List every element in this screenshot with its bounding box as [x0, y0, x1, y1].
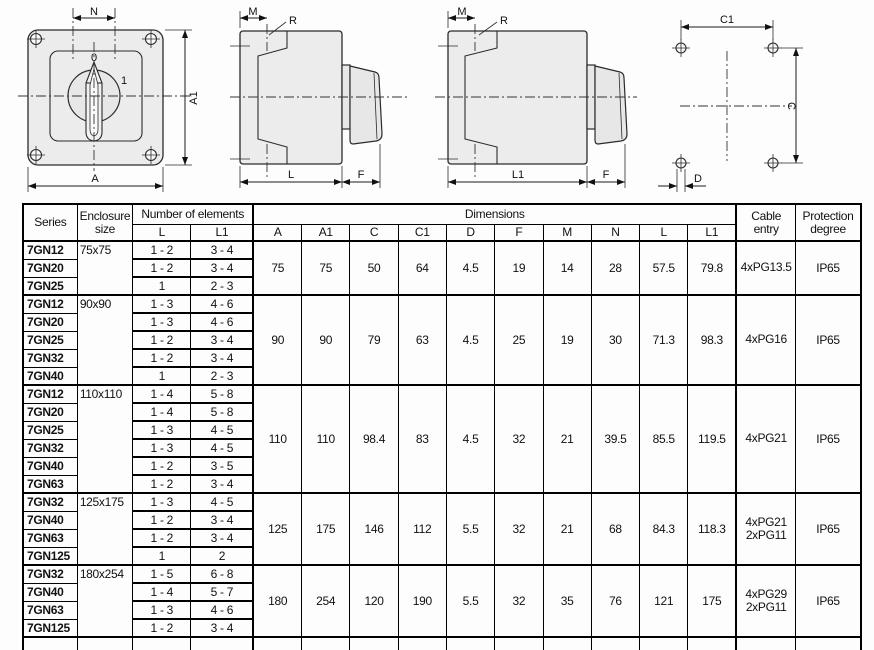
knob-side	[350, 66, 382, 144]
elements-l1-cell: 4 - 5	[191, 421, 253, 439]
dim-value-cell: 39.5	[591, 385, 639, 493]
dim-value-cell: 90	[253, 295, 301, 385]
dim-value-cell: 57.5	[640, 241, 688, 295]
protection-cell: IP65	[796, 241, 861, 295]
dim-label-c1: C1	[720, 14, 734, 26]
dim-value-cell: 175	[688, 565, 736, 637]
dim-value-cell: 32	[495, 565, 543, 637]
table-row: 7GN32180x2541 - 56 - 81802541201905.5323…	[23, 565, 861, 583]
cable-entry-cell: 4xPG21	[736, 385, 795, 493]
elements-l1-cell: 4 - 5	[191, 439, 253, 457]
elements-l1-cell: 4 - 6	[191, 313, 253, 331]
elements-l-cell: 1 - 2	[133, 259, 191, 277]
elements-l1-cell: 3 - 4	[191, 529, 253, 547]
series-cell: 7GN25	[23, 421, 77, 439]
dim-value-cell: 4.5	[446, 385, 494, 493]
table-row: 7GN1290x901 - 34 - 6909079634.525193071.…	[23, 295, 861, 313]
dim-value-cell: 71.3	[640, 295, 688, 385]
dim-label-f: F	[603, 169, 610, 181]
switch-body	[240, 31, 342, 164]
dim-value-cell: 64	[398, 241, 446, 295]
elements-l-cell: 1 - 3	[133, 439, 191, 457]
elements-l1-cell: 3 - 5	[191, 457, 253, 475]
enclosure-size-cell: 75x75	[77, 241, 132, 295]
elements-l-cell: 1 - 3	[133, 493, 191, 511]
series-cell: 7GN20	[23, 313, 77, 331]
elements-l-cell: 1 - 2	[133, 529, 191, 547]
col-header-dim-l1: L1	[688, 224, 736, 241]
dim-value-cell: 190	[398, 565, 446, 637]
stub-cell	[23, 637, 77, 650]
table-row: 7GN12110x1101 - 45 - 811011098.4834.5322…	[23, 385, 861, 403]
position-1-label: 1	[121, 75, 127, 87]
dim-value-cell: 75	[253, 241, 301, 295]
datasheet-page: 0 1 N A1 A M	[0, 0, 874, 650]
col-header-elements: Number of elements	[133, 204, 254, 224]
cable-entry-cell: 4xPG16	[736, 295, 795, 385]
col-header-dim-a1: A1	[302, 224, 350, 241]
stub-cell	[253, 637, 301, 650]
elements-l1-cell: 6 - 8	[191, 565, 253, 583]
table-row: 7GN32125x1751 - 34 - 51251751461125.5322…	[23, 493, 861, 511]
elements-l-cell: 1 - 2	[133, 511, 191, 529]
elements-l1-cell: 4 - 6	[191, 295, 253, 313]
dim-value-cell: 63	[398, 295, 446, 385]
series-cell: 7GN40	[23, 367, 77, 385]
dim-value-cell: 98.3	[688, 295, 736, 385]
stub-cell	[191, 637, 253, 650]
col-header-dim-n: N	[591, 224, 639, 241]
stub-cell	[543, 637, 591, 650]
dim-value-cell: 28	[591, 241, 639, 295]
series-cell: 7GN32	[23, 439, 77, 457]
elements-l1-cell: 3 - 4	[191, 241, 253, 259]
elements-l1-cell: 2	[191, 547, 253, 565]
dim-value-cell: 84.3	[640, 493, 688, 565]
dim-value-cell: 35	[543, 565, 591, 637]
stub-cell	[77, 637, 132, 650]
dim-value-cell: 5.5	[446, 565, 494, 637]
dim-value-cell: 175	[302, 493, 350, 565]
elements-l-cell: 1	[133, 547, 191, 565]
series-cell: 7GN20	[23, 403, 77, 421]
col-header-dim-f: F	[495, 224, 543, 241]
series-cell: 7GN125	[23, 547, 77, 565]
dim-value-cell: 25	[495, 295, 543, 385]
elements-l1-cell: 2 - 3	[191, 277, 253, 295]
side-view-short-drawing: M R L F	[225, 6, 420, 200]
series-cell: 7GN25	[23, 331, 77, 349]
side-view-long-drawing: M R L1 F	[425, 6, 643, 200]
dim-label-m: M	[457, 6, 466, 18]
col-header-dim-c: C	[350, 224, 398, 241]
dim-value-cell: 32	[495, 493, 543, 565]
stub-cell	[495, 637, 543, 650]
elements-l-cell: 1 - 2	[133, 457, 191, 475]
dim-value-cell: 120	[350, 565, 398, 637]
dim-value-cell: 119.5	[688, 385, 736, 493]
dim-value-cell: 50	[350, 241, 398, 295]
stub-cell	[736, 637, 795, 650]
dim-value-cell: 5.5	[446, 493, 494, 565]
dim-value-cell: 110	[302, 385, 350, 493]
series-cell: 7GN12	[23, 241, 77, 259]
series-cell: 7GN32	[23, 349, 77, 367]
front-view-drawing: 0 1 N A1 A	[15, 6, 215, 200]
elements-l-cell: 1 - 3	[133, 313, 191, 331]
dim-value-cell: 180	[253, 565, 301, 637]
stub-cell	[640, 637, 688, 650]
ref-label-r: R	[289, 15, 297, 27]
dim-value-cell: 146	[350, 493, 398, 565]
dim-label-n: N	[90, 6, 98, 18]
dim-value-cell: 90	[302, 295, 350, 385]
elements-l1-cell: 5 - 8	[191, 385, 253, 403]
knob-side	[595, 66, 627, 144]
spec-table-body: 7GN1275x751 - 23 - 4757550644.519142857.…	[23, 241, 861, 650]
elements-l-cell: 1 - 4	[133, 403, 191, 421]
spec-table: Series Enclosure size Number of elements…	[22, 203, 862, 650]
dim-value-cell: 4.5	[446, 295, 494, 385]
drill-pattern-drawing: C1 C D	[650, 6, 874, 201]
elements-l-cell: 1 - 2	[133, 619, 191, 637]
dim-label-a: A	[91, 173, 99, 185]
dim-value-cell: 4.5	[446, 241, 494, 295]
ref-label-r: R	[500, 15, 508, 27]
series-cell: 7GN20	[23, 259, 77, 277]
series-cell: 7GN32	[23, 493, 77, 511]
dim-value-cell: 118.3	[688, 493, 736, 565]
dim-value-cell: 68	[591, 493, 639, 565]
col-header-elements-l1: L1	[191, 224, 253, 241]
dim-value-cell: 19	[495, 241, 543, 295]
elements-l-cell: 1 - 5	[133, 565, 191, 583]
stub-cell	[688, 637, 736, 650]
dim-label-d: D	[694, 173, 702, 185]
col-header-series: Series	[23, 204, 77, 241]
elements-l-cell: 1 - 3	[133, 601, 191, 619]
protection-cell: IP65	[796, 385, 861, 493]
dim-value-cell: 83	[398, 385, 446, 493]
elements-l1-cell: 3 - 4	[191, 511, 253, 529]
dim-value-cell: 110	[253, 385, 301, 493]
elements-l-cell: 1 - 3	[133, 295, 191, 313]
protection-cell: IP65	[796, 295, 861, 385]
elements-l1-cell: 2 - 3	[191, 367, 253, 385]
col-header-dimensions: Dimensions	[253, 204, 736, 224]
col-header-elements-l: L	[133, 224, 191, 241]
elements-l-cell: 1 - 2	[133, 475, 191, 493]
series-cell: 7GN40	[23, 583, 77, 601]
elements-l-cell: 1 - 4	[133, 583, 191, 601]
cable-entry-cell: 4xPG21 2xPG11	[736, 493, 795, 565]
stub-cell	[302, 637, 350, 650]
dim-value-cell: 19	[543, 295, 591, 385]
dim-value-cell: 76	[591, 565, 639, 637]
elements-l1-cell: 5 - 8	[191, 403, 253, 421]
col-header-dim-m: M	[543, 224, 591, 241]
dim-value-cell: 30	[591, 295, 639, 385]
dim-label-a1: A1	[188, 91, 200, 104]
col-header-dim-d: D	[446, 224, 494, 241]
dim-value-cell: 21	[543, 385, 591, 493]
dim-value-cell: 125	[253, 493, 301, 565]
col-header-enclosure: Enclosure size	[77, 204, 132, 241]
dim-label-l: L	[288, 169, 294, 181]
dim-label-f: F	[358, 169, 365, 181]
dim-value-cell: 32	[495, 385, 543, 493]
series-cell: 7GN63	[23, 475, 77, 493]
series-cell: 7GN40	[23, 511, 77, 529]
stub-cell	[350, 637, 398, 650]
elements-l-cell: 1 - 2	[133, 331, 191, 349]
dim-value-cell: 98.4	[350, 385, 398, 493]
series-cell: 7GN32	[23, 565, 77, 583]
elements-l1-cell: 5 - 7	[191, 583, 253, 601]
dim-label-l1: L1	[512, 169, 524, 181]
dim-label-m: M	[248, 6, 257, 18]
protection-cell: IP65	[796, 493, 861, 565]
series-cell: 7GN63	[23, 601, 77, 619]
enclosure-size-cell: 90x90	[77, 295, 132, 385]
elements-l1-cell: 4 - 5	[191, 493, 253, 511]
series-cell: 7GN25	[23, 277, 77, 295]
elements-l-cell: 1 - 3	[133, 421, 191, 439]
stub-cell	[796, 637, 861, 650]
protection-cell: IP65	[796, 565, 861, 637]
dim-value-cell: 75	[302, 241, 350, 295]
elements-l1-cell: 4 - 6	[191, 601, 253, 619]
dim-value-cell: 14	[543, 241, 591, 295]
dim-label-c: C	[785, 102, 797, 110]
series-cell: 7GN125	[23, 619, 77, 637]
table-row: 7GN1275x751 - 23 - 4757550644.519142857.…	[23, 241, 861, 259]
series-cell: 7GN12	[23, 385, 77, 403]
series-cell: 7GN12	[23, 295, 77, 313]
stub-cell	[133, 637, 191, 650]
elements-l-cell: 1 - 2	[133, 349, 191, 367]
elements-l-cell: 1 - 4	[133, 385, 191, 403]
elements-l-cell: 1 - 2	[133, 241, 191, 259]
col-header-cable: Cable entry	[736, 204, 795, 241]
elements-l1-cell: 3 - 4	[191, 331, 253, 349]
dim-value-cell: 121	[640, 565, 688, 637]
dim-value-cell: 21	[543, 493, 591, 565]
stub-cell	[591, 637, 639, 650]
stub-cell	[398, 637, 446, 650]
dim-value-cell: 79.8	[688, 241, 736, 295]
cable-entry-cell: 4xPG13.5	[736, 241, 795, 295]
enclosure-size-cell: 110x110	[77, 385, 132, 493]
elements-l1-cell: 3 - 4	[191, 259, 253, 277]
enclosure-size-cell: 180x254	[77, 565, 132, 637]
series-cell: 7GN63	[23, 529, 77, 547]
cable-entry-cell: 4xPG29 2xPG11	[736, 565, 795, 637]
series-cell: 7GN40	[23, 457, 77, 475]
enclosure-size-cell: 125x175	[77, 493, 132, 565]
switch-body	[448, 31, 587, 164]
col-header-dim-l: L	[640, 224, 688, 241]
dim-value-cell: 254	[302, 565, 350, 637]
dim-value-cell: 112	[398, 493, 446, 565]
col-header-dim-c1: C1	[398, 224, 446, 241]
col-header-dim-a: A	[253, 224, 301, 241]
elements-l1-cell: 3 - 4	[191, 475, 253, 493]
table-row-cutoff	[23, 637, 861, 650]
dim-value-cell: 85.5	[640, 385, 688, 493]
stub-cell	[446, 637, 494, 650]
elements-l1-cell: 3 - 4	[191, 349, 253, 367]
elements-l1-cell: 3 - 4	[191, 619, 253, 637]
elements-l-cell: 1	[133, 367, 191, 385]
col-header-protection: Protection degree	[796, 204, 861, 241]
elements-l-cell: 1	[133, 277, 191, 295]
dim-value-cell: 79	[350, 295, 398, 385]
